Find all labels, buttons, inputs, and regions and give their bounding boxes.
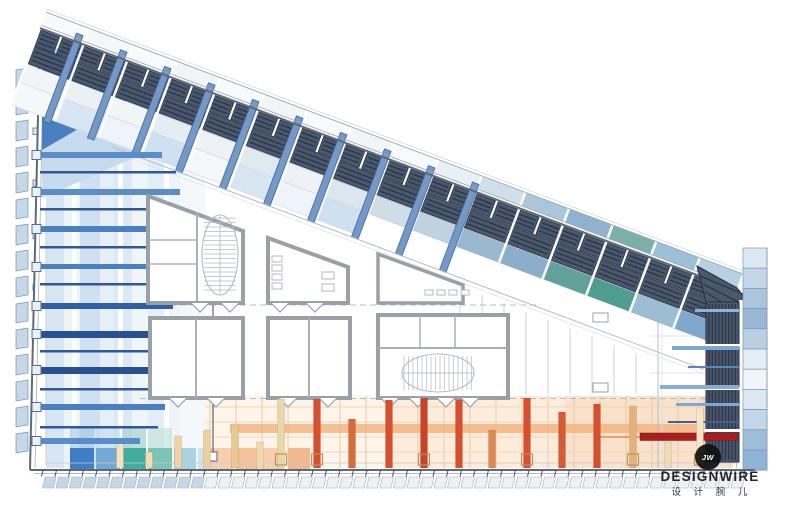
bottom-fringe-panel <box>556 477 570 488</box>
right-facade-panel <box>743 430 767 450</box>
warm-cell <box>288 448 310 469</box>
left-fringe-panel <box>16 172 28 193</box>
bottom-fringe-panel <box>232 477 246 488</box>
right-blue-bar <box>660 385 739 389</box>
left-fringe-panel <box>16 406 28 427</box>
right-facade-panel <box>743 450 767 470</box>
right-facade-panel <box>743 410 767 430</box>
left-cell-soft <box>148 428 172 448</box>
left-bar-node <box>32 151 41 160</box>
bottom-fringe-panel <box>569 477 583 488</box>
left-blue-bar <box>40 208 158 211</box>
vertical-bar <box>665 442 672 468</box>
left-fringe-panel <box>16 224 28 245</box>
left-bar-node <box>32 225 41 234</box>
right-facade-panel <box>743 349 767 369</box>
bottom-fringe-panel <box>461 477 475 488</box>
left-blue-bar <box>40 171 176 174</box>
bottom-fringe-panel <box>124 477 138 488</box>
watermark-brand: DESIGNWIRE <box>660 469 759 484</box>
plan-detail-box <box>593 383 608 392</box>
bottom-fringe-panel <box>110 477 124 488</box>
bottom-fringe-panel <box>434 477 448 488</box>
bottom-fringe-panel <box>637 477 651 488</box>
core-wall <box>378 315 508 398</box>
bottom-fringe-panel <box>515 477 529 488</box>
watermark-monogram: JW <box>702 453 715 462</box>
left-blue-bar <box>40 350 160 353</box>
left-fringe-panel <box>16 198 28 219</box>
left-fringe-panel <box>16 120 28 141</box>
vertical-bar <box>386 400 393 468</box>
bottom-fringe-panel <box>205 477 219 488</box>
bottom-fringe-panel <box>488 477 502 488</box>
fixture <box>437 290 445 295</box>
bottom-fringe-panel <box>475 477 489 488</box>
left-blue-bar <box>40 426 158 429</box>
vertical-bar <box>489 430 496 468</box>
bottom-fringe-panel <box>529 477 543 488</box>
right-facade-panel <box>743 248 767 268</box>
fixture <box>272 256 282 262</box>
bottom-fringe-panel <box>326 477 340 488</box>
floor-plan-diagram: JW DESIGNWIRE 设 计 腕 儿 <box>0 0 790 509</box>
left-bar-node <box>32 366 41 375</box>
bottom-fringe-panel <box>542 477 556 488</box>
fixture <box>272 274 282 280</box>
left-blue-bar <box>40 152 162 158</box>
bottom-fringe-panel <box>610 477 624 488</box>
fixture <box>461 290 469 295</box>
vertical-bar <box>314 399 321 468</box>
bottom-fringe-panel <box>596 477 610 488</box>
left-bar-node <box>32 437 41 446</box>
left-fringe-panel <box>16 328 28 349</box>
right-facade-panel <box>743 369 767 389</box>
bottom-fringe-panel <box>313 477 327 488</box>
right-blue-bar <box>688 366 739 368</box>
right-louver-mullion <box>704 429 741 432</box>
bottom-fringe-panel <box>286 477 300 488</box>
bottom-fringe-panel <box>137 477 151 488</box>
right-facade-panel <box>743 329 767 349</box>
bottom-fringe-panel <box>191 477 205 488</box>
fixture <box>322 284 334 291</box>
bottom-fringe-panel <box>83 477 97 488</box>
right-gap <box>739 300 743 470</box>
left-blue-bar <box>40 388 160 391</box>
left-fringe-panel <box>16 380 28 401</box>
left-fringe-panel <box>16 276 28 297</box>
right-facade-panel <box>743 268 767 288</box>
vertical-bar <box>456 400 463 468</box>
left-blue-bar <box>40 264 150 269</box>
bottom-fringe-panel <box>407 477 421 488</box>
left-bar-node <box>32 263 41 272</box>
vertical-bar <box>175 436 182 468</box>
left-bar-node <box>32 188 41 197</box>
vertical-bar <box>524 398 531 468</box>
left-fringe-panel <box>16 432 28 453</box>
left-blue-bar <box>40 189 180 195</box>
left-bar-node <box>32 302 41 311</box>
left-blue-bar <box>40 438 140 444</box>
vertical-bar <box>232 424 239 468</box>
right-facade-panel <box>743 309 767 329</box>
left-bar-node <box>32 330 41 339</box>
left-blue-bar <box>40 404 165 410</box>
bottom-fringe-panel <box>272 477 286 488</box>
vertical-bar <box>278 399 285 468</box>
bottom-fringe-panel <box>178 477 192 488</box>
left-cell <box>70 448 94 469</box>
plan-detail-box <box>593 313 608 322</box>
vertical-bar <box>559 412 566 468</box>
bottom-fringe-panel <box>340 477 354 488</box>
bottom-fringe-panel <box>367 477 381 488</box>
bottom-fringe-panel <box>394 477 408 488</box>
left-fringe-panel <box>16 146 28 167</box>
bottom-fringe-panel <box>353 477 367 488</box>
bottom-fringe-panel <box>421 477 435 488</box>
bottom-fringe-panel <box>70 477 84 488</box>
bottom-fringe-panel <box>623 477 637 488</box>
bottom-fringe-panel <box>299 477 313 488</box>
vertical-bar <box>349 419 356 468</box>
left-fringe-panel <box>16 302 28 323</box>
fixture <box>272 283 282 289</box>
right-facade-panel <box>743 288 767 308</box>
vertical-bar <box>146 452 153 468</box>
bottom-fringe-panel <box>218 477 232 488</box>
red-accent-bar <box>640 433 738 441</box>
warm-cell <box>236 448 258 469</box>
vertical-bar <box>421 398 428 468</box>
bottom-fringe-panel <box>164 477 178 488</box>
bottom-fringe-panel <box>43 477 57 488</box>
architectural-plan-canvas: JW DESIGNWIRE 设 计 腕 儿 <box>0 0 790 509</box>
right-blue-bar <box>695 309 739 312</box>
watermark-brand-cn: 设 计 腕 儿 <box>672 486 753 498</box>
bottom-fringe-panel <box>259 477 273 488</box>
vertical-bar <box>117 445 124 468</box>
bottom-fringe-panel <box>502 477 516 488</box>
bottom-fringe-panel <box>583 477 597 488</box>
bottom-fringe-panel <box>151 477 165 488</box>
fixture <box>272 265 282 271</box>
right-blue-bar <box>676 403 739 406</box>
bottom-fringe-panel <box>448 477 462 488</box>
bottom-fringe-panel <box>97 477 111 488</box>
left-bar-node <box>32 403 41 412</box>
vertical-bar <box>594 404 601 468</box>
right-blue-bar <box>672 346 739 350</box>
left-fringe-panel <box>16 354 28 375</box>
vertical-bar <box>204 430 211 468</box>
bottom-fringe-panel <box>245 477 259 488</box>
left-cell <box>122 448 146 469</box>
vertical-bar <box>257 442 264 468</box>
left-fringe-panel <box>16 250 28 271</box>
fixture <box>425 290 433 295</box>
bottom-fringe-panel <box>56 477 70 488</box>
bottom-fringe-panel <box>380 477 394 488</box>
fixture <box>449 290 457 295</box>
right-facade-panel <box>743 389 767 409</box>
fixture <box>322 272 334 279</box>
vertical-bar <box>630 406 637 468</box>
